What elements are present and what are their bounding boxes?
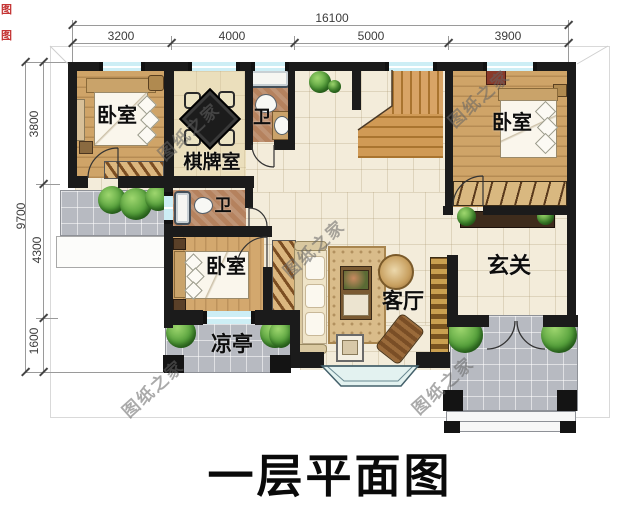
dim-top-total-line [72, 25, 568, 26]
dim-top-seg-line [72, 43, 568, 44]
sofa-cushion-2 [305, 284, 325, 308]
dim-left-seg-2: 4300 [31, 233, 43, 267]
room-label-entry-hall: 玄关 [482, 254, 536, 277]
dim-top-total: 16100 [302, 12, 362, 24]
nightstand-mid-n [173, 238, 186, 250]
wall-entry-bottom-left [447, 315, 489, 327]
table-tray [343, 294, 369, 316]
hall-plant-small [328, 80, 341, 93]
dim-left-seg-line [43, 62, 44, 372]
room-label-bedroom-right: 卧室 [485, 113, 539, 134]
bathtub-mid [174, 191, 191, 225]
wall-bath-mid-bottom [164, 226, 272, 237]
wall-chess-bath [245, 62, 253, 150]
hall-plant-big [309, 71, 331, 93]
window-stairs [385, 62, 437, 71]
floor-plan-canvas: 卧室 棋牌室 卫 卫 卧室 卧室 玄关 客厅 凉亭 16100 3200 400… [0, 0, 640, 505]
wall-bedroom-right-bottom-b [483, 206, 576, 215]
wall-bath-top-right [288, 62, 295, 150]
wall-terrace-top-b [118, 176, 254, 188]
dim-top-seg-3: 5000 [346, 30, 396, 42]
room-label-bath-top: 卫 [252, 108, 272, 127]
pavilion-pillar-right [270, 355, 291, 373]
porch-step-2 [446, 421, 576, 432]
room-label-bath-mid: 卫 [213, 197, 233, 215]
dresser-tl [148, 75, 164, 91]
dim-left-seg-1: 3800 [28, 107, 40, 141]
window-bedroom-mid-south [203, 311, 255, 324]
porch-step-cap-right [560, 421, 576, 433]
dim-left-total: 9700 [15, 199, 27, 233]
room-label-pavilion: 凉亭 [206, 334, 258, 356]
dim-top-seg-1: 3200 [96, 30, 146, 42]
table-flowers [343, 270, 369, 290]
round-table [378, 254, 414, 290]
window-terrace-side [164, 192, 173, 224]
wall-terrace-top-a [68, 176, 88, 188]
wall-exterior-right [567, 62, 576, 327]
wall-bedroom-mid-bottom-a [164, 310, 203, 325]
room-label-living: 客厅 [379, 291, 427, 313]
wall-bay-stub-left [290, 352, 324, 368]
window-bath-top [251, 62, 289, 71]
wall-exterior-left [68, 62, 77, 187]
wall-divider-bed1-chess [164, 62, 174, 188]
porch-step-cap-left [444, 421, 460, 433]
terrace-slab [56, 236, 168, 268]
wall-stairs-left [352, 62, 361, 110]
nightstand-tl [79, 141, 93, 154]
edge-mark-bottom: 图 [1, 31, 12, 42]
dim-top-seg-2: 4000 [207, 30, 257, 42]
dim-left-ext-1 [25, 62, 68, 63]
bench-plant-left [457, 207, 476, 226]
window-chess [188, 62, 240, 71]
plan-title: 一层平面图 [150, 440, 510, 505]
wall-bedroom-mid-bottom-b [255, 310, 300, 325]
dim-top-seg-4: 3900 [483, 30, 533, 42]
sofa-cushion-3 [305, 312, 325, 336]
cabinet-tl-left [76, 99, 85, 141]
dim-left-ext-4 [25, 372, 164, 373]
stool-book [342, 340, 358, 355]
porch-pillar-right [557, 390, 577, 411]
room-label-bedroom-tl: 卧室 [91, 106, 143, 127]
dim-left-seg-3: 1600 [28, 324, 40, 358]
wardrobe-hangers [453, 181, 567, 206]
wall-bath-mid-right [245, 188, 253, 208]
dim-left-ext-3 [36, 318, 58, 319]
bathtub-top [249, 69, 290, 88]
stair-treads-upper [392, 70, 443, 116]
room-label-chess: 棋牌室 [175, 153, 249, 173]
bed-headboard-tl [86, 78, 156, 93]
room-label-bedroom-mid: 卧室 [199, 257, 253, 278]
window-bedroom-tl [99, 62, 145, 71]
edge-mark-top: 图 [1, 5, 12, 16]
wall-bath-top-bottom-a [245, 140, 252, 150]
